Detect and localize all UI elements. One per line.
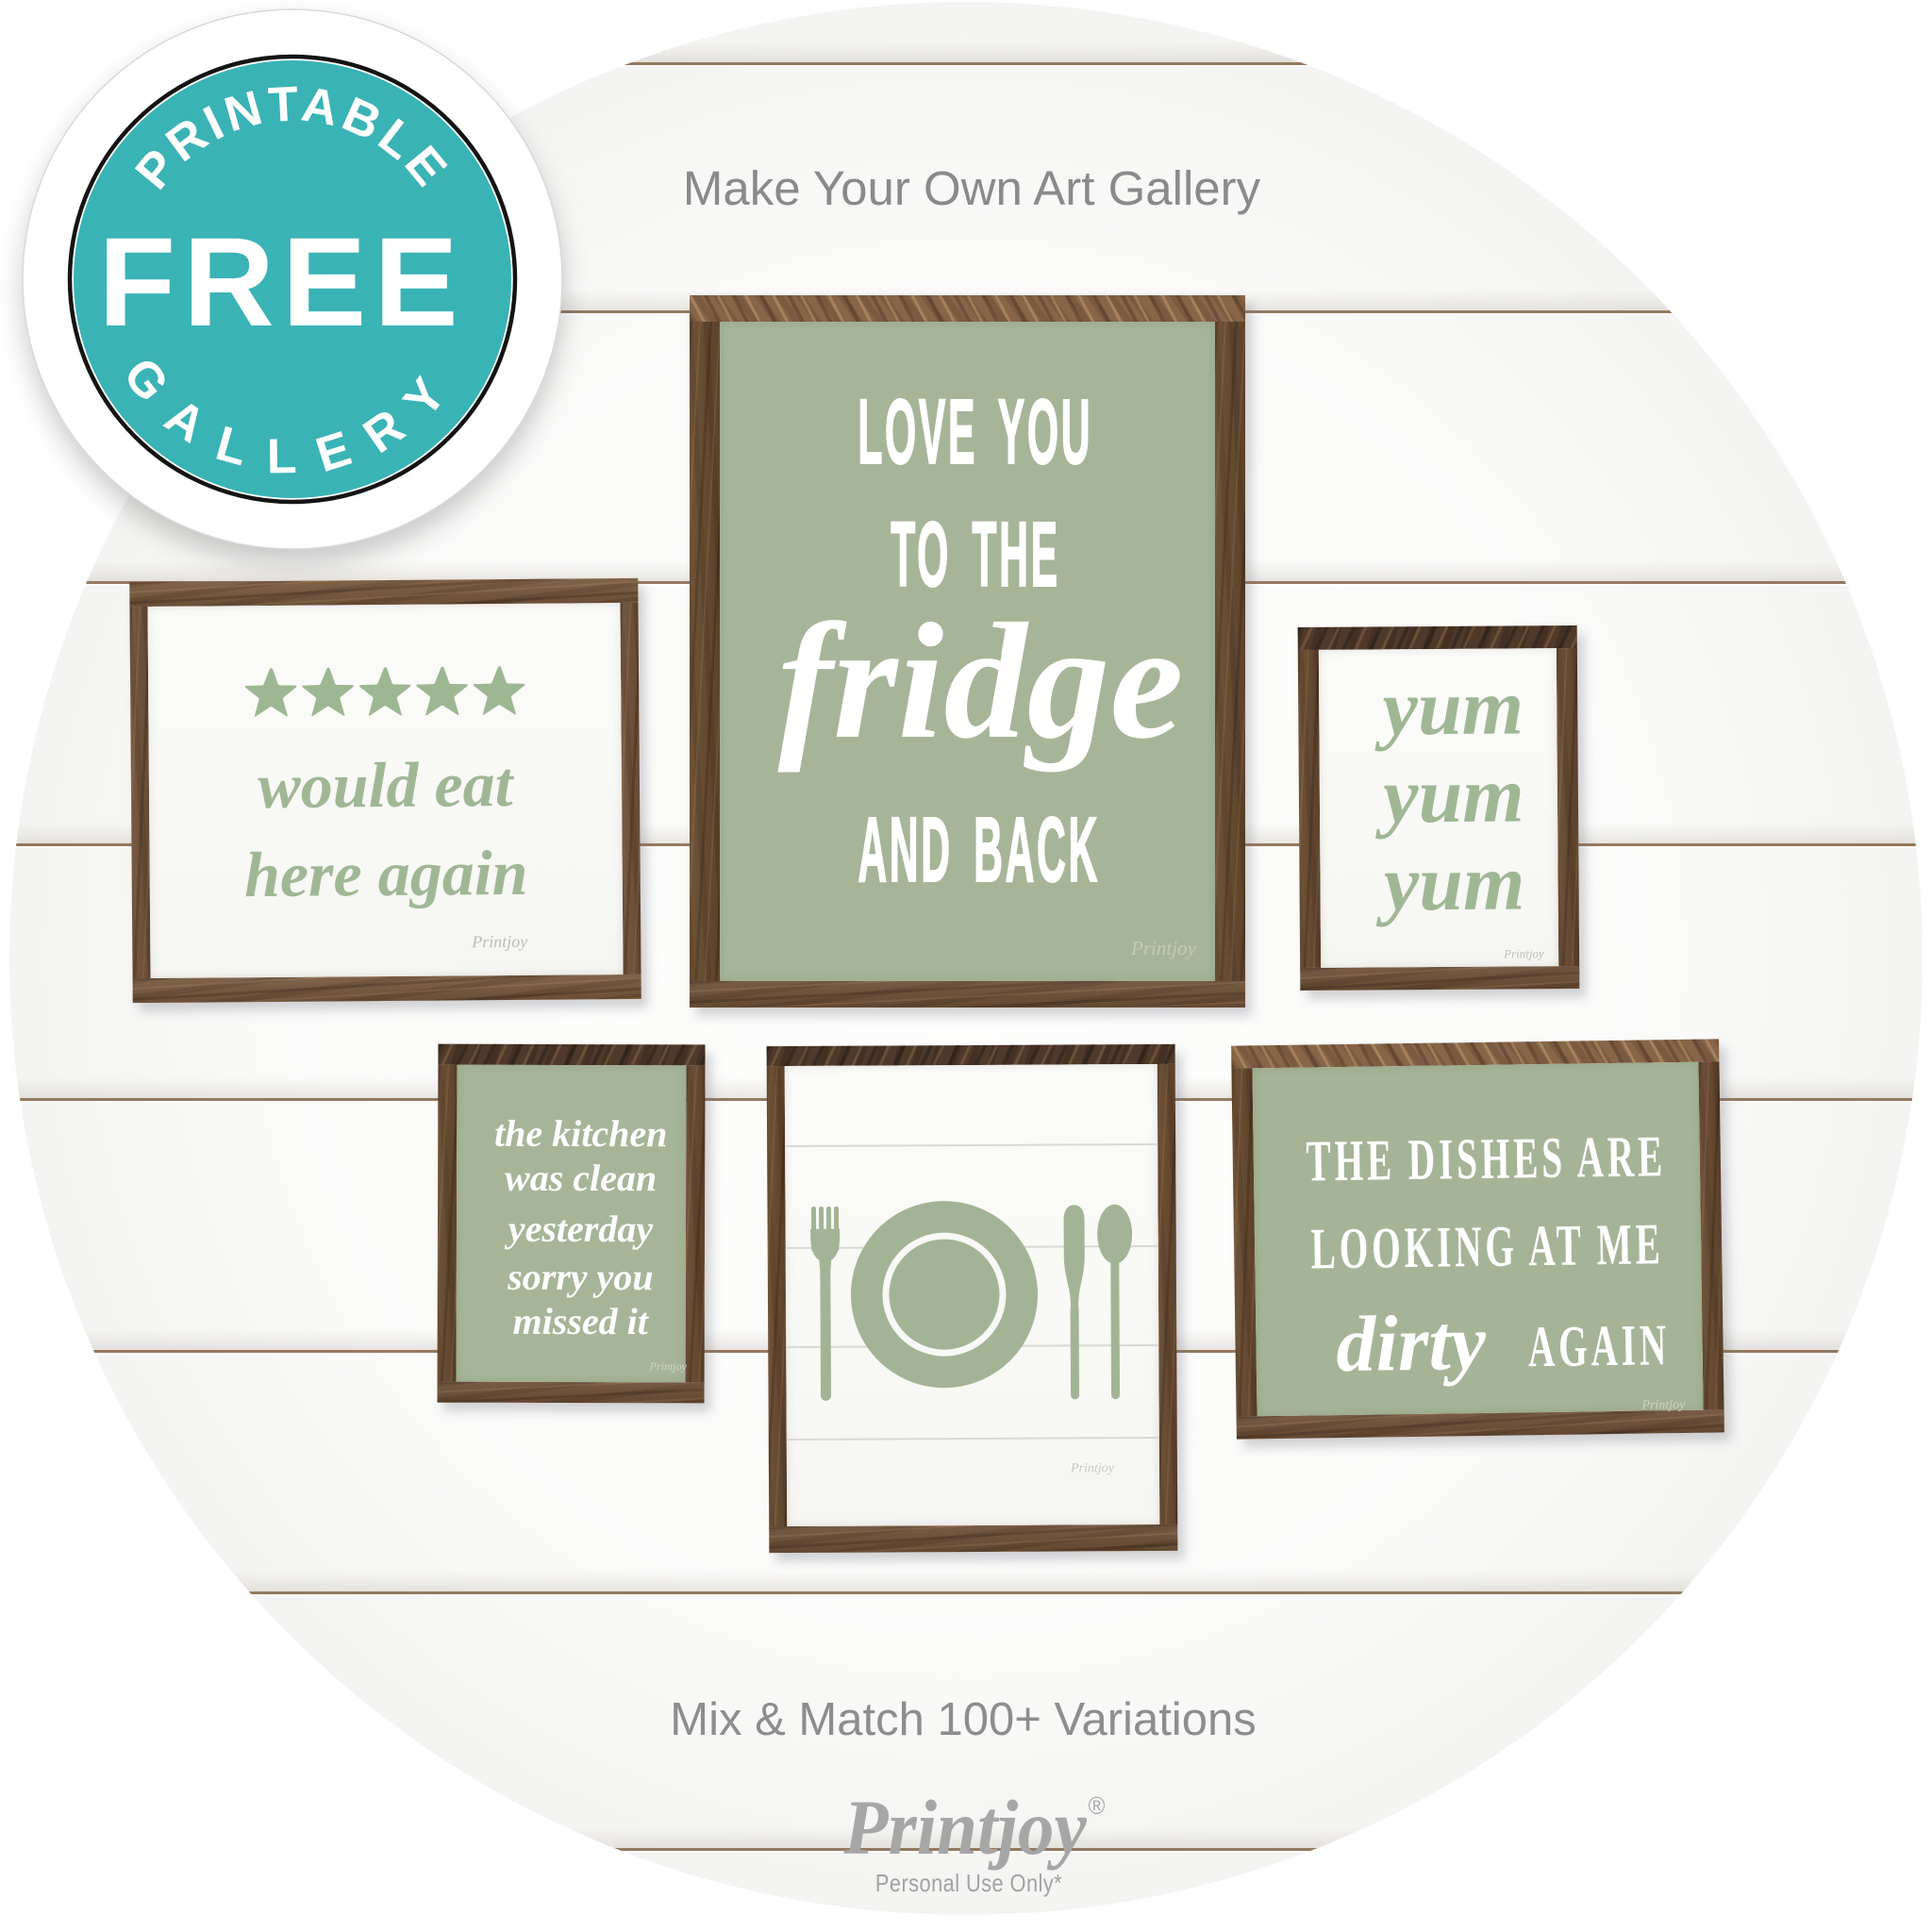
svg-text:FREE: FREE (98, 212, 465, 353)
